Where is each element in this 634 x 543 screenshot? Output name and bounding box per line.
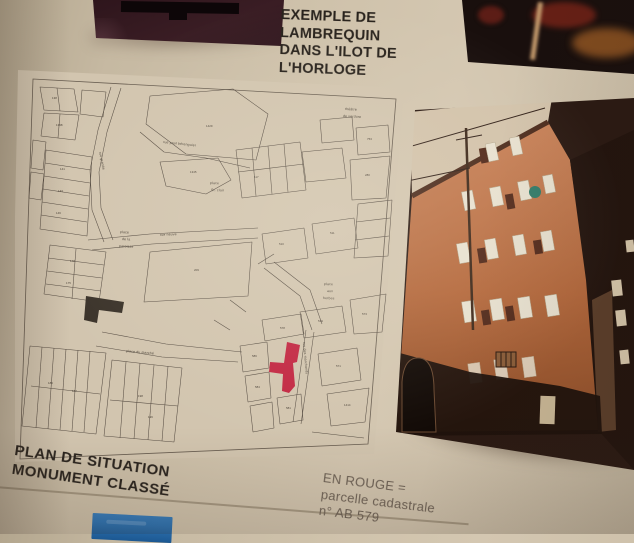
map-parcel-number: 143 (58, 189, 63, 193)
map-parcel-number: 187 (72, 389, 77, 393)
map-parcel-number: 280 (365, 173, 370, 177)
photo-orange-blob (572, 28, 634, 58)
map-parcel-number: 1398 (56, 123, 63, 127)
map-parcel-number: 584 (255, 385, 260, 389)
map-parcel-number: 186 (48, 381, 53, 385)
map-parcel-number: 581 (286, 406, 291, 410)
map-street-label: St. clair (211, 188, 225, 192)
map-parcel-number: 1429 (206, 124, 213, 128)
building-photo-art (396, 96, 634, 474)
map-street-label: herbes (323, 296, 335, 300)
cadastral-map: rue granderue paul bérenguierplacede lap… (15, 64, 405, 464)
map-parcel-number: 578 (280, 326, 285, 330)
map-street-label: place (324, 282, 333, 286)
map-parcel-number: 146 (56, 211, 61, 215)
map-street-label: de la (122, 237, 131, 241)
photo-light-streak (530, 2, 543, 60)
photo-dark-red-blob (478, 6, 504, 24)
map-parcel-number: 511 (330, 231, 335, 235)
map-parcel-number: 571 (336, 364, 341, 368)
topright-photo (462, 0, 634, 76)
caption-lambrequin-example: EXEMPLE DE LAMBREQUIN DANS L'ILOT DE L'H… (279, 7, 406, 81)
map-street-label: théâtre (345, 107, 357, 112)
blue-card-glare (106, 520, 146, 526)
map-parcel-number: 586 (252, 354, 257, 358)
map-street-label: aux (327, 289, 333, 293)
legend-en-rouge: EN ROUGE = parcelle cadastrale n° AB 579 (318, 470, 438, 533)
teal-awning (529, 186, 541, 198)
map-parcel-number: 196 (148, 415, 153, 419)
map-parcel-number: 1345 (190, 170, 197, 174)
map-street-label: paroisse (119, 244, 134, 249)
map-parcel-number: 209 (194, 268, 199, 272)
lambrequin-notch (169, 12, 187, 20)
map-parcel-number: 573 (362, 312, 367, 316)
map-parcel-number: 117 (254, 175, 259, 179)
archway (402, 358, 436, 432)
map-parcel-number: 1414 (344, 403, 351, 407)
map-parcel-number: 510 (279, 242, 284, 246)
map-parcel-number: 198 (138, 394, 143, 398)
map-parcel-number: 141 (60, 167, 65, 171)
blue-card (91, 513, 172, 543)
map-street-label: place (210, 181, 219, 185)
doorway (540, 396, 556, 425)
photographed-heritage-panel: { "captions": { "top": { "lines": ["EXEM… (0, 0, 634, 534)
map-parcel-number: 519 (318, 319, 323, 323)
map-parcel-number: 148 (70, 259, 75, 263)
map-parcel-number: 138 (52, 96, 57, 100)
building-photo (396, 96, 634, 474)
map-street-label: place (120, 230, 129, 234)
map-parcel-number: 175 (66, 281, 71, 285)
map-parcel-number: 753 (367, 137, 372, 141)
